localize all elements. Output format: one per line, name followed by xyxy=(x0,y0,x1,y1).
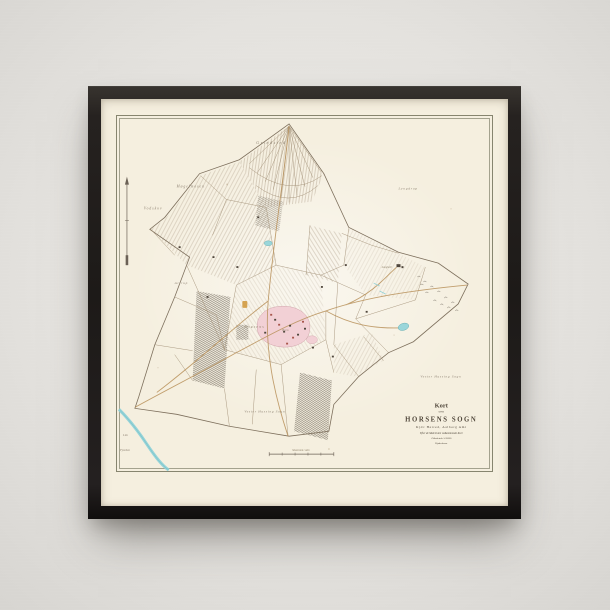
title-over: over xyxy=(439,409,444,413)
title-note3: Kjøbenhavn xyxy=(435,442,448,445)
map-label-lyngdrup: Lyngdrup xyxy=(397,187,417,191)
title-note2: i Maalestok 1:20000 xyxy=(431,437,452,440)
map-label-langholt: Langholt xyxy=(381,266,392,269)
marsh-tufts xyxy=(417,276,458,311)
scale-bar xyxy=(269,452,334,456)
picture-frame: Maalestok i Alen Grindsted Møgelmosen Vo… xyxy=(88,86,521,519)
map-drawing: Maalestok i Alen Grindsted Møgelmosen Vo… xyxy=(117,116,492,471)
map-label-vodskov: Vodskov xyxy=(144,206,163,210)
map-label-byen: Byen xyxy=(282,328,289,332)
north-arrow xyxy=(125,177,129,266)
map-label-horsens-village: HORSENS xyxy=(243,325,265,329)
map-label-lim: Lim xyxy=(122,433,129,437)
scale-bar-label: Maalestok i Alen xyxy=(291,449,310,452)
map-label-grindsted: Grindsted xyxy=(256,140,286,145)
title-note1: Efter de Matriculen vedkommende Kort xyxy=(419,432,463,435)
map-neatline-border: Maalestok i Alen Grindsted Møgelmosen Vo… xyxy=(116,115,493,472)
title-main: HORSENS SOGN xyxy=(405,416,477,423)
pond-large xyxy=(397,322,410,332)
pond-small xyxy=(264,241,272,246)
wall-background: Maalestok i Alen Grindsted Møgelmosen Vo… xyxy=(0,0,610,610)
map-title-block: Kort over HORSENS SOGN Kjær Herred, Aalb… xyxy=(405,402,477,445)
map-paper-sheet: Maalestok i Alen Grindsted Møgelmosen Vo… xyxy=(101,99,508,506)
title-kort: Kort xyxy=(435,402,449,409)
farm-orange-blob xyxy=(242,301,247,308)
map-label-attrup: Attrup xyxy=(174,281,188,285)
map-label-fjorden: Fjorden xyxy=(119,448,131,452)
title-subtitle: Kjær Herred, Aalborg Amt xyxy=(416,425,466,430)
map-label-mogelmosen: Møgelmosen xyxy=(176,185,205,189)
map-label-vester-hassing-east: Vester Hassing Sogn xyxy=(420,375,461,379)
map-label-vester-hassing-south: Vester Hassing Sogn xyxy=(244,409,285,413)
